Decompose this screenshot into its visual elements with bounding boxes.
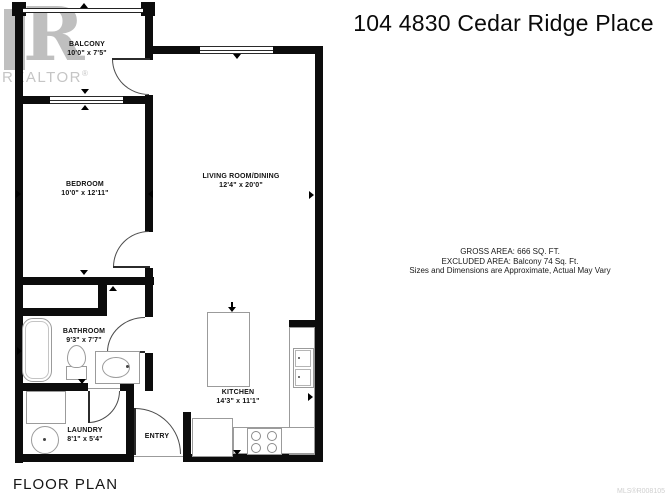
stove (247, 428, 282, 455)
laundry-door-arc (88, 391, 120, 423)
wall (145, 95, 153, 232)
bathtub (22, 318, 52, 382)
wall (15, 383, 88, 391)
room-label-bedroom: BEDROOM 10'0" x 12'11" (61, 181, 108, 198)
room-name: LIVING ROOM/DINING (202, 173, 279, 182)
room-name: KITCHEN (216, 389, 259, 398)
area-info: GROSS AREA: 666 SQ. FT. EXCLUDED AREA: B… (355, 247, 665, 276)
wall (15, 308, 107, 316)
burner (251, 443, 261, 453)
floor-plan-caption: FLOOR PLAN (13, 476, 118, 493)
toilet-tank (66, 366, 87, 380)
room-dimensions: 10'0" x 12'11" (61, 190, 108, 199)
balcony-door-leaf (112, 58, 150, 60)
refrigerator (192, 418, 233, 457)
toilet-bowl (67, 345, 86, 368)
entry-door-threshold (134, 456, 183, 457)
dimension-marker (309, 191, 314, 199)
dimension-marker (17, 347, 22, 355)
room-name: LAUNDRY (67, 427, 103, 436)
dimension-marker (80, 270, 88, 275)
wall (145, 353, 153, 391)
bedroom-window (50, 96, 123, 104)
room-dimensions: 10'0" x 7'5" (67, 50, 107, 59)
floor-plan-page: R REALTOR® (0, 0, 667, 500)
washer-dot (43, 438, 46, 441)
dimension-marker (233, 450, 241, 455)
living-room-window (200, 46, 273, 54)
room-label-laundry: LAUNDRY 8'1" x 5'4" (67, 427, 103, 444)
balcony-railing (23, 8, 143, 13)
gross-area-line: GROSS AREA: 666 SQ. FT. (355, 247, 665, 257)
dimension-marker (81, 89, 89, 94)
room-name: BEDROOM (61, 181, 108, 190)
bathroom-door-arc (107, 317, 145, 352)
kitchen-sink (293, 348, 314, 388)
entry-door-arc (135, 408, 181, 454)
dimension-marker (233, 54, 241, 59)
burner (251, 431, 261, 441)
dimension-marker (16, 190, 21, 198)
faucet-dot (298, 357, 300, 359)
wall (23, 277, 154, 285)
dimension-marker (80, 3, 88, 8)
room-label-balcony: BALCONY 10'0" x 7'5" (67, 41, 107, 58)
bedroom-door-leaf (113, 266, 150, 268)
bathtub-inner (25, 321, 49, 379)
room-label-bathroom: BATHROOM 9'3" x 7'7" (63, 328, 105, 345)
wall (145, 268, 153, 317)
mls-code: MLS®R008105 (617, 488, 665, 495)
room-name: BATHROOM (63, 328, 105, 337)
room-name: ENTRY (145, 433, 169, 442)
wall (15, 14, 23, 463)
wall (315, 46, 323, 462)
registered-symbol: ® (82, 69, 89, 78)
wall (126, 383, 134, 462)
dimension-marker (109, 286, 117, 291)
dimension-marker (231, 302, 233, 308)
realtor-wordmark-text: REALTOR (2, 69, 82, 86)
room-dimensions: 14'3" x 11'1" (216, 398, 259, 407)
dryer (26, 391, 66, 424)
entry-door-leaf (134, 408, 136, 455)
dimension-marker (308, 393, 313, 401)
room-dimensions: 9'3" x 7'7" (63, 337, 105, 346)
faucet-dot (298, 376, 300, 378)
room-name: BALCONY (67, 41, 107, 50)
room-label-kitchen: KITCHEN 14'3" x 11'1" (216, 389, 259, 406)
laundry-door-leaf (88, 391, 90, 423)
room-label-living-dining: LIVING ROOM/DINING 12'4" x 20'0" (202, 173, 279, 190)
disclaimer-line: Sizes and Dimensions are Approximate, Ac… (355, 266, 665, 276)
wall (289, 320, 317, 327)
balcony-door-arc (112, 59, 149, 95)
burner (267, 431, 277, 441)
wall (15, 454, 134, 462)
page-title: 104 4830 Cedar Ridge Place (340, 10, 667, 37)
room-dimensions: 12'4" x 20'0" (202, 182, 279, 191)
room-dimensions: 8'1" x 5'4" (67, 436, 103, 445)
burner (267, 443, 277, 453)
room-label-entry: ENTRY (145, 433, 169, 442)
laundry-door-threshold (88, 388, 120, 389)
kitchen-island (207, 312, 250, 387)
excluded-area-line: EXCLUDED AREA: Balcony 74 Sq. Ft. (355, 257, 665, 267)
faucet-dot (126, 365, 129, 368)
bedroom-door-arc (113, 231, 149, 267)
dimension-marker (148, 190, 153, 198)
dimension-marker (78, 379, 86, 384)
dimension-marker (81, 105, 89, 110)
